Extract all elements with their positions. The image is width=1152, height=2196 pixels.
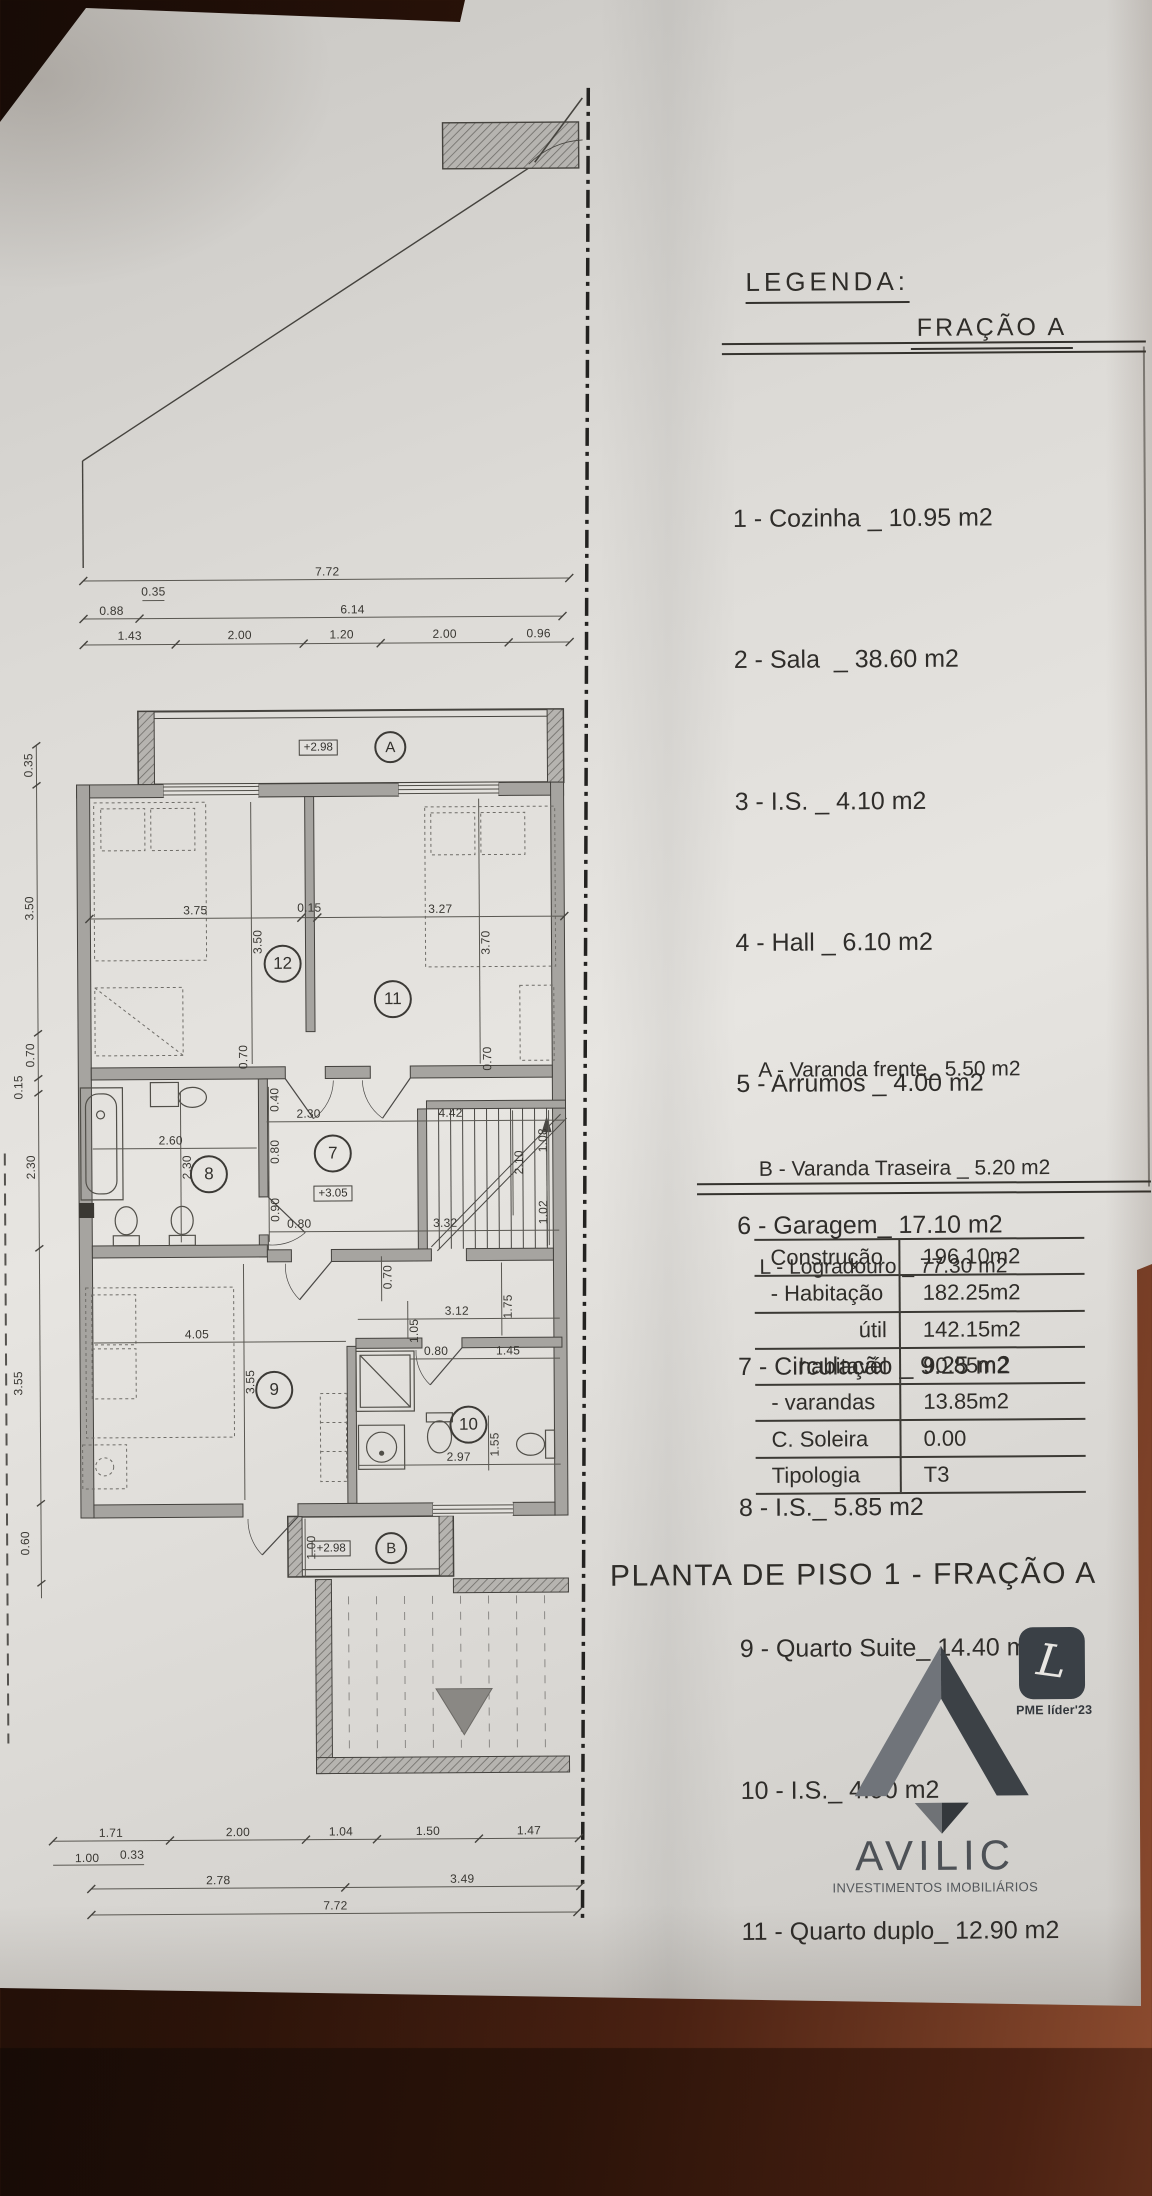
legend-item: 12 - Quarto duplo_ 14.00 m2 [742,2048,1062,2097]
dim-label: 7.72 [323,1898,347,1912]
dim-label: 1.43 [117,629,141,643]
table-row: útil 142.15m2 [755,1311,1085,1349]
sheet-title: PLANTA DE PISO 1 - FRAÇÃO A [563,1557,1143,1595]
table-row-label: Tipologia [756,1462,900,1489]
room-number-8: 8 [190,1155,228,1193]
dim-label: 1.20 [329,627,353,641]
table-row: - Habitação 182.25m2 [755,1275,1085,1313]
dim-label: 7.72 [315,564,339,578]
dim-label: 2.78 [206,1873,230,1887]
dim-label: 0.70 [480,1046,494,1070]
legend-item: 3 - I.S. _ 4.10 m2 [735,777,1055,826]
legend-item: 1 - Cozinha _ 10.95 m2 [733,494,1053,543]
dim-label: 2.97 [447,1450,471,1464]
dim-label: 3.50 [22,896,36,920]
dim-label: 0.15 [297,901,321,915]
avilic-logo-icon [844,1635,1035,1836]
dim-label: 3.55 [11,1371,25,1395]
dim-label: 1.47 [517,1823,541,1837]
dim-label: 0.96 [526,626,550,640]
dim-label: 3.27 [428,902,452,916]
dim-label: 0.70 [23,1043,37,1067]
legend-title: LEGENDA: [745,266,909,304]
level-marker-balcony-a: +2.98 [299,739,338,755]
dim-label: 1.71 [99,1826,123,1840]
table-row-value: 182.25m2 [899,1275,1085,1310]
legend-item: 2 - Sala _ 38.60 m2 [734,636,1054,685]
table-row-label: útil [755,1317,899,1344]
level-marker-balcony-b: +2.98 [312,1540,351,1556]
dim-label: 3.75 [183,903,207,917]
dim-label: 2.30 [24,1155,38,1179]
dim-label: 1.08 [536,1128,550,1152]
lot-lines [80,98,585,568]
table-row-label: habitavél [755,1353,899,1380]
dim-label: 3.70 [478,930,492,954]
room-number-9: 9 [255,1371,293,1409]
dim-label: 6.14 [340,602,364,616]
dim-label: 1.75 [501,1294,515,1318]
table-row-value: T3 [900,1457,1086,1492]
dim-label: 1.05 [407,1319,421,1343]
plan-sheet-paper: 7.72 0.35 0.88 6.14 1.43 2.00 1.20 2.00 … [0,0,1152,2048]
table-row-value: 142.15m2 [899,1311,1085,1346]
dim-label: 2.00 [226,1825,250,1839]
dim-label: 0.60 [18,1531,32,1555]
fraction-label: FRAÇÃO A [911,313,1074,350]
room-number-12: 12 [264,945,302,983]
dim-label: 1.50 [416,1824,440,1838]
table-row: habitavél 90.85m2 [755,1348,1085,1386]
sheet-content: 7.72 0.35 0.88 6.14 1.43 2.00 1.20 2.00 … [0,0,1152,2051]
badge-letter: L [1034,1634,1070,1688]
dim-label: 1.00 [75,1851,99,1865]
areas-table: Construção 196.10m2 - Habitação 182.25m2… [754,1237,1086,1495]
table-row-label: Construção [754,1244,898,1271]
room-number-7: 7 [314,1134,352,1172]
pme-lider-badge-label: PME líder'23 [1008,1703,1100,1718]
dim-label: 3.49 [450,1872,474,1886]
table-row-label: - Habitação [755,1280,899,1307]
dim-label: 2.30 [296,1107,320,1121]
dim-label: 2.10 [512,1150,526,1174]
table-row-value: 196.10m2 [898,1239,1084,1274]
dim-label: 2.00 [432,627,456,641]
balcony-a-marker: A [374,731,406,763]
dim-label: 3.32 [433,1216,457,1230]
dim-label: 4.05 [185,1327,209,1341]
dim-label: 0.40 [267,1088,281,1112]
dim-label: 3.12 [445,1304,469,1318]
table-row: Tipologia T3 [756,1457,1086,1495]
legend-item: 4 - Hall _ 6.10 m2 [735,918,1055,967]
dim-label: 0.70 [236,1045,250,1069]
dim-label: 0.70 [380,1265,394,1289]
dim-label: 1.55 [487,1432,501,1456]
legend-annex-item: A - Varanda frente_ 5.50 m2 [758,1054,1050,1088]
table-row-value: 0.00 [899,1420,1085,1455]
room-number-10: 10 [449,1406,487,1444]
dim-label: 1.04 [329,1824,353,1838]
dim-label: 0.15 [11,1075,25,1099]
balcony-b-marker: B [375,1532,407,1564]
dim-label: 0.35 [21,753,35,777]
dim-label: 2.00 [227,628,251,642]
dim-label: 0.80 [287,1217,311,1231]
table-row-value: 90.85m2 [899,1348,1085,1383]
dim-label: 3.50 [250,930,264,954]
ramp-arrow-icon [436,1689,492,1735]
dim-label: 0.80 [268,1140,282,1164]
table-row-label: C. Soleira [755,1426,899,1453]
pme-lider-badge-icon: L [1019,1627,1085,1699]
level-marker-corridor: +3.05 [313,1185,352,1201]
table-row-label: - varandas [755,1389,899,1416]
room-number-11: 11 [374,980,412,1018]
dim-label: 4.42 [438,1106,462,1120]
garage-ramp [315,1578,569,1774]
legend-item: 11 - Quarto duplo_ 12.90 m2 [741,1907,1061,1956]
table-row: Construção 196.10m2 [754,1239,1084,1277]
dim-label: 0.33 [120,1848,144,1862]
table-row-value: 13.85m2 [899,1384,1085,1419]
dim-label: 0.80 [424,1344,448,1358]
dim-label: 1.02 [536,1200,550,1224]
dim-label: 2.60 [159,1133,183,1147]
logo-tagline: INVESTIMENTOS IMOBILIÁRIOS [825,1879,1045,1895]
dim-label: 0.88 [99,604,123,618]
logo-wordmark: AVILIC [835,1831,1035,1880]
table-row: - varandas 13.85m2 [755,1384,1085,1422]
table-row: C. Soleira 0.00 [755,1420,1085,1458]
dim-label: 0.90 [268,1198,282,1222]
dim-label: 0.35 [141,585,165,599]
dim-label: 1.45 [496,1343,520,1357]
